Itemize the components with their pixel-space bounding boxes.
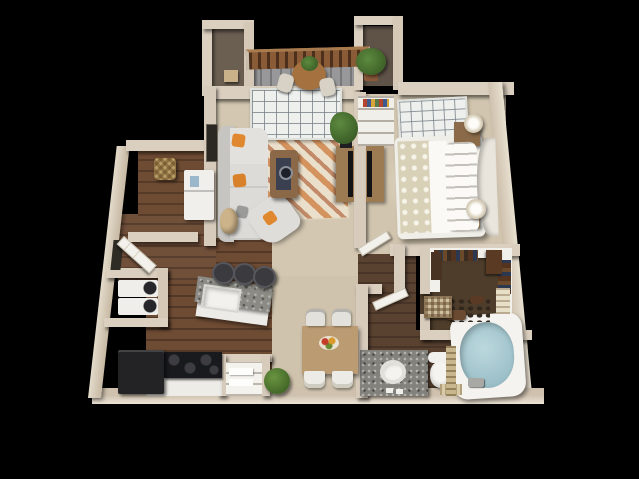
topiary-plant xyxy=(264,368,290,394)
fruit-bowl xyxy=(319,336,339,350)
closet-bag xyxy=(470,296,484,304)
dryer xyxy=(118,298,158,315)
wall-storage-right-east xyxy=(393,16,403,90)
barstool-1 xyxy=(212,262,235,284)
vanity-sink xyxy=(380,360,406,384)
dining-chair-nw xyxy=(306,309,325,326)
range-cooktop xyxy=(164,352,222,378)
closet-dresser xyxy=(486,250,502,274)
coffee-table-decor xyxy=(279,166,293,180)
washer xyxy=(118,280,158,297)
bathtub-faucet xyxy=(468,378,484,387)
dining-chair-ne xyxy=(332,309,351,326)
closet-clothes-west xyxy=(431,252,442,280)
storage-box xyxy=(224,70,238,82)
living-wall-art xyxy=(206,124,218,162)
wall-closet-west-upper xyxy=(420,248,430,294)
tv-bedroom xyxy=(367,151,372,197)
dining-chair-se xyxy=(332,371,353,388)
wall-living-west xyxy=(204,86,216,246)
vanity-soap-items xyxy=(386,388,393,393)
linen-shelf-books xyxy=(363,99,389,107)
balcony-plant-foliage xyxy=(356,48,386,75)
wall-storage-left-west xyxy=(202,20,212,96)
refrigerator-black xyxy=(118,350,164,394)
tub-screen-panel xyxy=(446,346,456,396)
sofa-pillow-orange-1 xyxy=(231,133,246,148)
balcony-table-plant xyxy=(301,56,318,71)
refrigerator-white xyxy=(184,170,214,220)
lamp-north xyxy=(464,114,483,133)
kitchen-sink xyxy=(201,284,242,313)
wall-hall-closet xyxy=(394,244,405,294)
pantry-dishes xyxy=(229,368,253,375)
sofa-pillow-orange-2 xyxy=(232,173,246,187)
dining-table xyxy=(302,326,358,374)
floorplan-image xyxy=(0,0,639,479)
living-plant-foliage xyxy=(330,112,358,144)
utility-basket xyxy=(154,158,176,180)
bed-foot-blanket xyxy=(397,140,432,233)
closet-towel-stack xyxy=(496,288,510,314)
hamper-basket xyxy=(424,296,452,318)
tv-living xyxy=(348,151,353,197)
fridge-note xyxy=(190,176,199,187)
barstool-3 xyxy=(253,266,276,288)
wall-utility-south xyxy=(128,232,198,242)
lamp-south xyxy=(466,199,486,219)
wall-laundry-south xyxy=(104,318,168,327)
dining-chair-sw xyxy=(304,371,325,388)
floor-vase xyxy=(220,208,238,234)
wall-utility-north xyxy=(126,140,216,151)
